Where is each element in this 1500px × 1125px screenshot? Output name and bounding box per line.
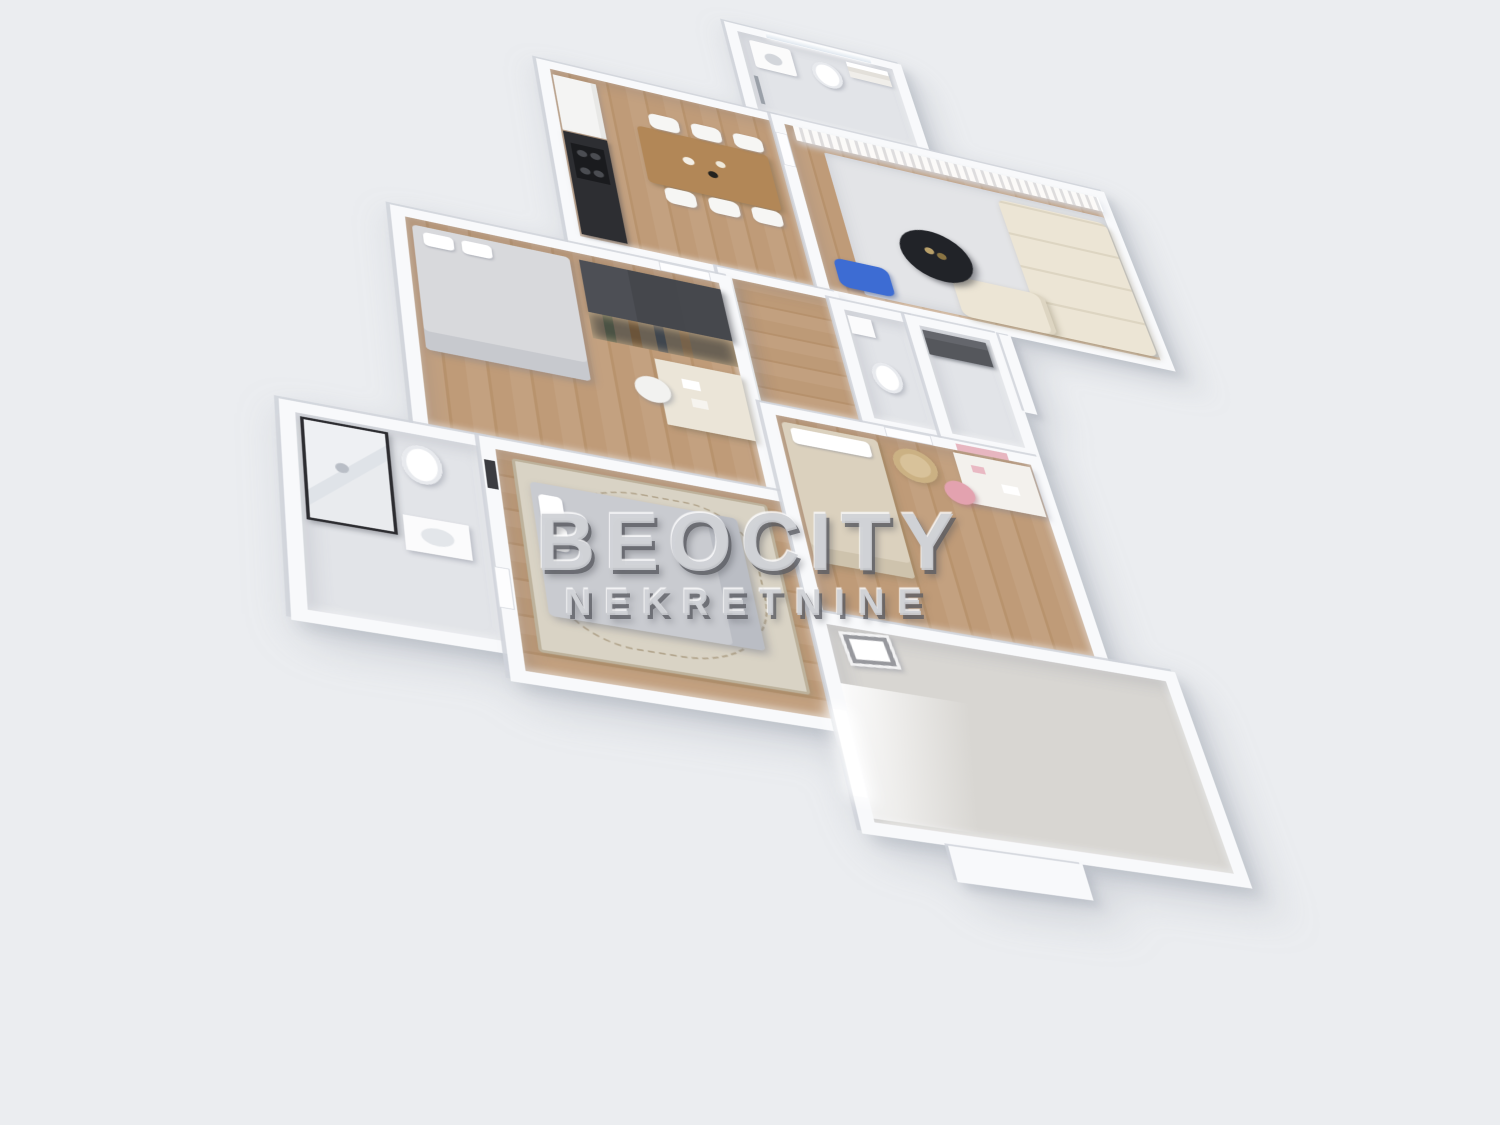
watermark-brand: BEOCITY bbox=[0, 496, 1500, 590]
apartment-3d-plan bbox=[222, 0, 1394, 943]
floor-plan-render: BEOCITY NEKRETNINE bbox=[0, 0, 1500, 1125]
watermark-tagline: NEKRETNINE bbox=[0, 582, 1500, 624]
